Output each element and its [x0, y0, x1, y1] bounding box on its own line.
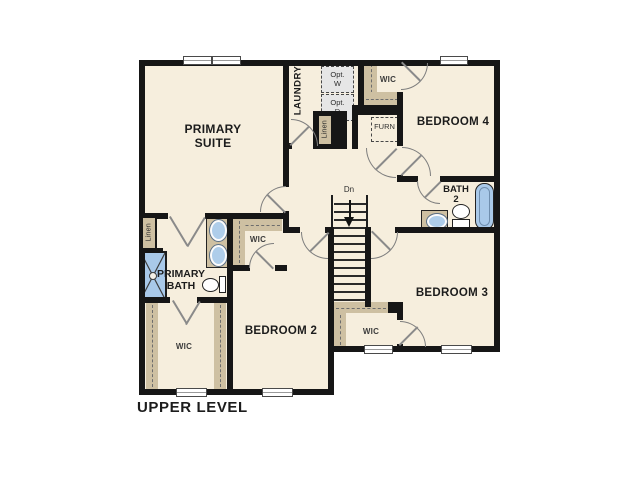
wall: [397, 313, 403, 320]
bathtub-inner-line: [479, 187, 490, 226]
window: [364, 345, 393, 354]
room-label-wic-bedroom4: WIC: [374, 75, 402, 84]
room-label-laundry: LAUNDRY: [294, 55, 305, 125]
wall: [283, 227, 300, 233]
window: [183, 56, 212, 65]
wall: [139, 389, 334, 395]
sink: [210, 220, 227, 241]
stair-tread: [334, 227, 366, 229]
label-stairs-down: Dn: [339, 185, 359, 194]
wall: [139, 297, 170, 303]
stair-tread: [334, 267, 366, 269]
closet-rod: [146, 303, 158, 389]
optional-washer-label: Opt. W: [330, 71, 344, 88]
sink: [210, 245, 227, 266]
floor-plan: Opt. W Opt. D FURN: [0, 0, 640, 480]
window: [176, 388, 207, 397]
room-label-bath-2: BATH 2: [436, 185, 476, 206]
page-title: UPPER LEVEL: [137, 399, 277, 416]
label-linen-laundry: Linen: [321, 113, 330, 145]
closet-rod: [334, 313, 346, 347]
closet-rod: [214, 303, 226, 389]
stair-tread: [334, 275, 366, 277]
stair-tread: [334, 283, 366, 285]
wall: [358, 60, 364, 111]
toilet-tank: [219, 276, 226, 293]
stair-tread: [334, 259, 366, 261]
furnace-label: FURN: [374, 123, 395, 132]
wall: [388, 302, 403, 313]
room-label-wic-bedroom2: WIC: [244, 235, 272, 244]
wall: [227, 213, 233, 393]
room-label-wic-primary: WIC: [170, 342, 198, 351]
stair-tread: [334, 251, 366, 253]
stair-tread: [334, 291, 366, 293]
room-label-bedroom-2: BEDROOM 2: [231, 325, 331, 338]
room-label-primary-bath: PRIMARY BATH: [146, 268, 216, 292]
wall: [227, 265, 250, 271]
wall: [205, 213, 289, 219]
window: [262, 388, 293, 397]
label-linen-primary: Linen: [145, 216, 154, 248]
wall: [397, 176, 418, 182]
window: [212, 56, 241, 65]
optional-washer-box: Opt. W: [321, 66, 354, 93]
closet-shelf: [364, 92, 400, 105]
wall: [352, 111, 358, 149]
stair-tread: [334, 243, 366, 245]
furnace-box: FURN: [371, 117, 398, 142]
bathtub: [475, 183, 494, 230]
wall: [197, 297, 228, 303]
closet-shelf: [334, 302, 388, 313]
wall: [395, 227, 500, 233]
wall: [440, 176, 500, 182]
room-label-bedroom-3: BEDROOM 3: [402, 287, 502, 300]
wall: [494, 60, 500, 352]
room-label-bedroom-4: BEDROOM 4: [403, 116, 503, 129]
wall: [283, 60, 289, 187]
window: [441, 345, 472, 354]
toilet-bowl: [452, 204, 470, 219]
room-label-primary-suite: PRIMARY SUITE: [153, 123, 273, 151]
room-label-wic-bedroom3: WIC: [357, 327, 385, 336]
window: [440, 56, 468, 65]
wall: [275, 265, 287, 271]
stair-tread: [334, 299, 366, 301]
stair-down-arrowhead: [344, 217, 354, 227]
stair-tread: [334, 235, 366, 237]
stair-down-arrow: [349, 200, 351, 218]
wall: [328, 227, 334, 395]
